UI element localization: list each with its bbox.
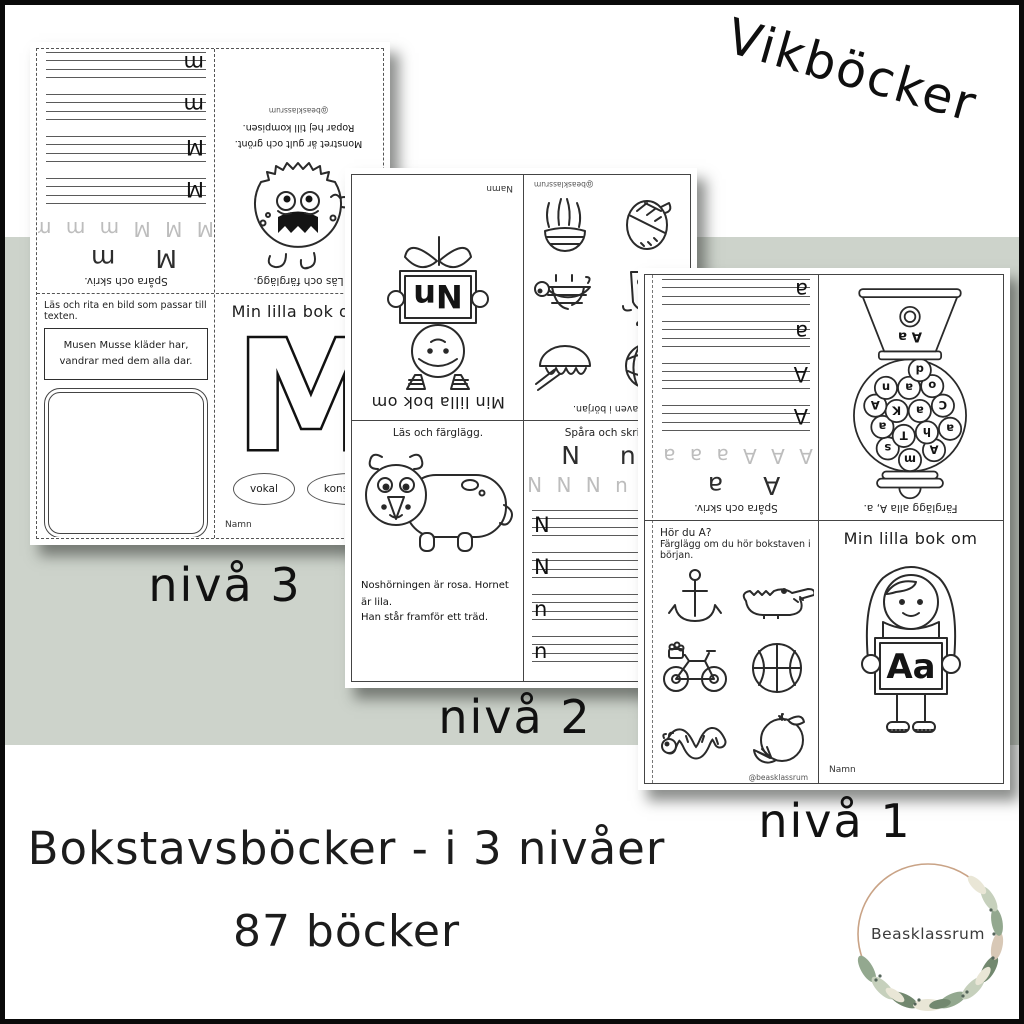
- trace-letters: A a: [654, 470, 818, 500]
- level-2-label: nivå 2: [400, 690, 630, 744]
- line-letter: m: [184, 94, 204, 115]
- svg-text:C: C: [939, 398, 947, 412]
- line-letter: M: [186, 136, 204, 157]
- writing-line: M: [46, 136, 206, 167]
- svg-text:A: A: [930, 443, 939, 457]
- name-label: Namn: [225, 520, 252, 530]
- drawing-area: [44, 388, 208, 537]
- rhino-sentence-2: Han står framför ett träd.: [361, 609, 515, 626]
- svg-text:K: K: [892, 404, 902, 418]
- beasklassrum-logo: Beasklassrum: [843, 852, 1013, 1022]
- trace-caption: Spåra och skriv.: [660, 502, 812, 514]
- bicycle-illustration: [656, 633, 734, 703]
- svg-text:a: a: [947, 421, 955, 435]
- book-title: Min lilla bok om: [821, 529, 1000, 548]
- svg-text:h: h: [923, 425, 931, 439]
- credit-handle: @beasklassrum: [215, 106, 382, 115]
- svg-text:T: T: [900, 428, 908, 442]
- line-letter: N: [534, 515, 550, 536]
- rhino-sentence-1: Noshörningen är rosa. Hornet är lila.: [361, 577, 515, 611]
- vowel-oval: vokal: [233, 473, 295, 505]
- child-holding-sign-illustration: Nn: [353, 225, 523, 393]
- svg-text:d: d: [916, 363, 924, 377]
- trace-caption: Spåra och skriv.: [44, 275, 208, 287]
- product-title: Bokstavsböcker - i 3 nivåer: [24, 822, 669, 875]
- line-letter: A: [794, 363, 808, 384]
- svg-text:a: a: [906, 380, 914, 394]
- name-label: Namn: [486, 183, 513, 193]
- girl-holding-sign-illustration: Aa: [819, 550, 1002, 750]
- story-line-2: vandrar med dem alla dar.: [60, 356, 193, 367]
- svg-text:o: o: [929, 379, 937, 393]
- crocodile-illustration: [738, 563, 816, 633]
- gumball-caption: Färglägg alla A, a.: [825, 502, 996, 514]
- quadrant-sound-pictures-a: Hör du A? Färglägg om du hör bokstaven i…: [654, 521, 818, 782]
- turtle-illustration: [526, 261, 604, 331]
- trace-letters: M m: [38, 243, 214, 273]
- sound-instruction: Färglägg om du hör bokstaven i början.: [660, 539, 812, 561]
- basketball-illustration: [738, 633, 816, 703]
- svg-text:a: a: [879, 420, 887, 434]
- monster-sentence-1: Monstret är gult och grönt.: [223, 135, 374, 151]
- rhino-illustration: [353, 445, 523, 573]
- read-color-caption: Läs och färglägg.: [359, 427, 517, 439]
- story-line-1: Musen Musse kläder har,: [64, 340, 189, 351]
- worksheet-niva3-letter-m: Spåra och skriv. M m M M M m m m M M m m…: [30, 42, 390, 545]
- credit-handle: @beasklassrum: [534, 180, 689, 189]
- writing-line: A: [662, 363, 810, 394]
- quadrant-read-draw: Läs och rita en bild som passar till tex…: [38, 294, 214, 537]
- svg-text:A a: A a: [899, 329, 923, 344]
- book-count: 87 böcker: [24, 906, 669, 957]
- jellyfish-illustration: [526, 191, 604, 261]
- orange-illustration: [738, 703, 816, 773]
- monster-sentence-2: Ropar hej till kompisen.: [223, 119, 374, 135]
- svg-text:A: A: [871, 398, 880, 412]
- quadrant-trace-a: Spåra och skriv. A a A A A a a a A A a a: [654, 276, 818, 520]
- gray-practice-row: A A A a a a: [654, 444, 818, 468]
- nut-illustration: [609, 191, 687, 261]
- quadrant-gumball: Färglägg alla A, a.: [819, 276, 1002, 520]
- gumball-machine-illustration: A m s a h T a C a K A o a n d A a: [819, 282, 1002, 500]
- name-label: Namn: [829, 765, 856, 775]
- writing-line: m: [46, 52, 206, 83]
- line-letter: A: [794, 405, 808, 426]
- credit-handle: @beasklassrum: [654, 773, 808, 782]
- level-1-label: nivå 1: [720, 794, 950, 848]
- line-letter: n: [534, 641, 547, 662]
- line-letter: n: [534, 599, 547, 620]
- quadrant-cover-a: Min lilla bok om Aa Namn: [819, 521, 1002, 782]
- line-letter: m: [184, 52, 204, 73]
- handwritten-title: Vikböcker: [700, 2, 1004, 139]
- line-letter: N: [534, 557, 550, 578]
- writing-line: m: [46, 94, 206, 125]
- quadrant-trace-m: Spåra och skriv. M m M M M m m m M M m m: [38, 50, 214, 293]
- line-letter: a: [795, 279, 808, 300]
- worm-illustration: [656, 703, 734, 773]
- svg-text:m: m: [904, 453, 916, 467]
- noodles-illustration: [526, 331, 604, 401]
- worksheet-niva1-letter-a: Spåra och skriv. A a A A A a a a A A a a…: [638, 268, 1010, 790]
- svg-text:n: n: [882, 380, 890, 394]
- writing-line: a: [662, 321, 810, 352]
- line-letter: a: [795, 321, 808, 342]
- svg-text:Nn: Nn: [413, 277, 463, 315]
- writing-line: M: [46, 178, 206, 209]
- draw-caption: Läs och rita en bild som passar till tex…: [44, 300, 208, 322]
- logo-text: Beasklassrum: [871, 925, 985, 943]
- book-title: Min lilla bok om: [355, 393, 521, 412]
- svg-text:a: a: [916, 404, 924, 418]
- story-box: Musen Musse kläder har, vandrar med dem …: [44, 328, 208, 380]
- sound-question: Hör du A?: [660, 527, 812, 539]
- gray-practice-row: M M M m m m: [38, 217, 214, 241]
- quadrant-cover-n: Min lilla bok om Nn Namn: [353, 176, 523, 420]
- svg-text:Aa: Aa: [886, 647, 935, 687]
- line-letter: M: [186, 178, 204, 199]
- cut-line: [652, 275, 653, 783]
- anchor-illustration: [656, 563, 734, 633]
- quadrant-rhino: Läs och färglägg. Nosh: [353, 421, 523, 680]
- level-3-label: nivå 3: [110, 558, 340, 612]
- writing-line: a: [662, 279, 810, 310]
- writing-line: A: [662, 405, 810, 436]
- svg-text:s: s: [885, 441, 892, 455]
